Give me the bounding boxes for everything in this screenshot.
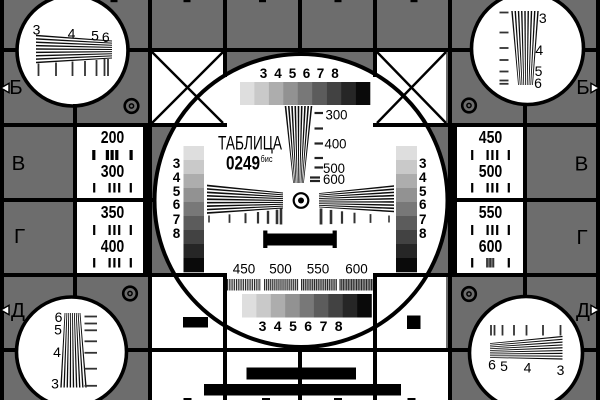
svg-text:400: 400	[101, 236, 125, 256]
svg-text:600: 600	[345, 262, 368, 277]
svg-text:200: 200	[101, 127, 125, 147]
svg-text:3: 3	[539, 10, 547, 26]
svg-text:500: 500	[479, 161, 503, 181]
svg-text:5: 5	[54, 322, 62, 338]
svg-text:8: 8	[419, 226, 427, 241]
svg-text:Г: Г	[576, 226, 587, 249]
svg-text:бис: бис	[261, 154, 273, 165]
svg-text:3: 3	[259, 318, 267, 334]
svg-text:Б: Б	[576, 76, 589, 99]
svg-text:550: 550	[307, 262, 330, 277]
svg-text:Г: Г	[14, 225, 25, 248]
svg-text:Д: Д	[576, 299, 590, 322]
svg-text:5: 5	[289, 318, 297, 334]
svg-text:3: 3	[33, 21, 41, 37]
svg-text:6: 6	[303, 66, 311, 81]
svg-text:4: 4	[524, 360, 532, 376]
svg-text:600: 600	[323, 171, 345, 187]
svg-text:400: 400	[325, 136, 347, 152]
svg-text:350: 350	[101, 202, 125, 222]
svg-text:4: 4	[535, 42, 543, 58]
svg-text:5: 5	[289, 66, 297, 81]
svg-text:7: 7	[173, 212, 181, 227]
svg-text:8: 8	[335, 318, 343, 334]
svg-text:В: В	[575, 153, 589, 176]
svg-text:7: 7	[419, 212, 427, 227]
svg-text:6: 6	[173, 197, 181, 212]
svg-text:8: 8	[331, 66, 339, 81]
svg-text:5: 5	[500, 358, 508, 374]
svg-text:550: 550	[479, 202, 503, 222]
svg-text:450: 450	[479, 127, 503, 147]
svg-text:6: 6	[488, 357, 496, 373]
svg-text:300: 300	[101, 161, 125, 181]
svg-text:4: 4	[173, 170, 181, 185]
svg-text:500: 500	[269, 262, 292, 277]
svg-text:450: 450	[233, 262, 256, 277]
svg-text:6: 6	[102, 29, 110, 45]
svg-text:8: 8	[173, 226, 181, 241]
svg-text:300: 300	[326, 107, 348, 123]
svg-text:600: 600	[479, 236, 503, 256]
svg-text:3: 3	[260, 66, 268, 81]
svg-text:4: 4	[419, 170, 427, 185]
svg-text:7: 7	[317, 66, 325, 81]
svg-text:6: 6	[534, 75, 542, 91]
svg-text:4: 4	[68, 26, 76, 42]
svg-text:4: 4	[53, 344, 61, 360]
svg-text:Д: Д	[11, 299, 25, 322]
svg-text:5: 5	[91, 28, 99, 44]
svg-text:3: 3	[557, 362, 565, 378]
svg-text:4: 4	[274, 318, 282, 334]
svg-text:В: В	[12, 152, 26, 175]
svg-text:6: 6	[419, 197, 427, 212]
svg-text:4: 4	[274, 66, 282, 81]
svg-text:0249: 0249	[226, 153, 260, 175]
svg-text:Б: Б	[9, 76, 22, 99]
svg-text:ТАБЛИЦА: ТАБЛИЦА	[218, 134, 282, 155]
svg-text:3: 3	[51, 376, 59, 392]
svg-text:3: 3	[173, 156, 181, 171]
svg-text:7: 7	[320, 318, 328, 334]
svg-text:3: 3	[419, 156, 427, 171]
svg-text:6: 6	[304, 318, 312, 334]
